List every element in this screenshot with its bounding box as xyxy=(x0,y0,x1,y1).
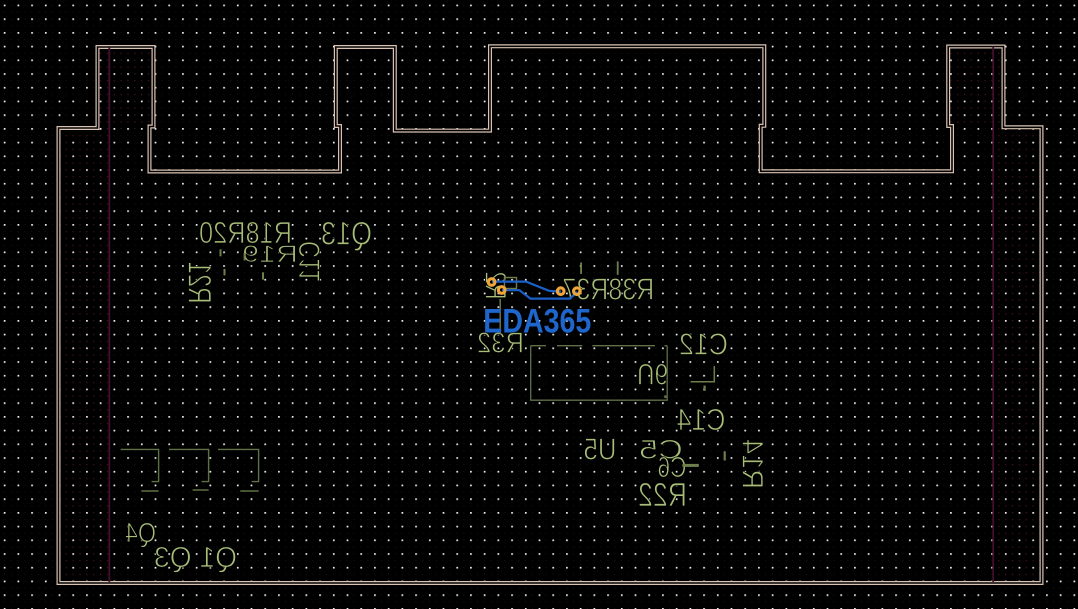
svg-text:C12: C12 xyxy=(679,327,728,362)
svg-text:R14: R14 xyxy=(736,439,769,489)
svg-text:Q13: Q13 xyxy=(321,216,372,252)
svg-text:R19: R19 xyxy=(242,241,298,268)
svg-text:R21: R21 xyxy=(182,262,218,304)
svg-text:Q1 Q3: Q1 Q3 xyxy=(154,542,237,574)
svg-text:U5: U5 xyxy=(584,432,617,467)
svg-text:C11: C11 xyxy=(294,241,327,282)
svg-text:R22: R22 xyxy=(638,476,687,513)
svg-text:U6: U6 xyxy=(637,357,668,390)
svg-text:EDA365: EDA365 xyxy=(483,303,591,341)
svg-text:C14: C14 xyxy=(677,402,726,437)
svg-text:Q4: Q4 xyxy=(125,517,156,548)
